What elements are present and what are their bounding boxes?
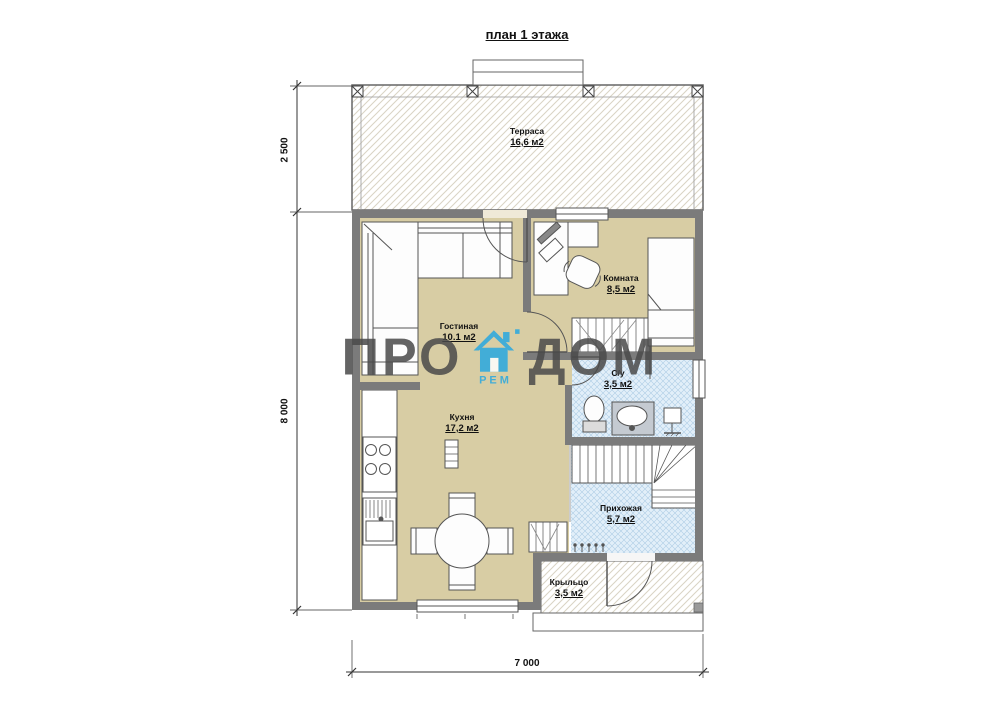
room-name: Комната bbox=[603, 273, 638, 284]
room-name: Кухня bbox=[445, 412, 478, 423]
house-icon bbox=[472, 328, 520, 374]
room-label-bedroom: Комната 8,5 м2 bbox=[603, 273, 638, 296]
bath-window bbox=[693, 360, 705, 398]
room-label-porch: Крыльцо 3,5 м2 bbox=[550, 577, 589, 600]
room-label-hallway: Прихожая 5,7 м2 bbox=[600, 503, 642, 526]
bath-sink bbox=[612, 402, 654, 435]
toilet bbox=[583, 396, 606, 432]
hall-closet bbox=[529, 522, 567, 552]
watermark-left-text: ПРО bbox=[342, 331, 463, 383]
watermark-sub-text: РЕМ bbox=[479, 375, 512, 387]
room-area: 3,5 м2 bbox=[550, 588, 589, 600]
room-name: Прихожая bbox=[600, 503, 642, 514]
dimension-bottom: 7 000 bbox=[514, 658, 539, 669]
page-title: план 1 этажа bbox=[486, 27, 569, 42]
room-label-terrace: Терраса 16,6 м2 bbox=[510, 126, 544, 149]
room-area: 17,2 м2 bbox=[445, 423, 478, 435]
kitchen-window bbox=[417, 600, 518, 619]
room-area: 16,6 м2 bbox=[510, 137, 544, 149]
floor-plan-page: план 1 этажа Терраса 16,6 м2 Гостиная 10… bbox=[0, 0, 1000, 708]
room-label-kitchen: Кухня 17,2 м2 bbox=[445, 412, 478, 435]
room-area: 8,5 м2 bbox=[603, 284, 638, 296]
room-name: Терраса bbox=[510, 126, 544, 137]
watermark-right-text: ДОМ bbox=[529, 331, 659, 383]
room-window bbox=[556, 208, 608, 220]
watermark: ПРО РЕМ ДОМ bbox=[342, 328, 659, 387]
dimension-left-main: 8 000 bbox=[280, 398, 291, 423]
kitchen-counter bbox=[362, 390, 397, 600]
watermark-house: РЕМ bbox=[472, 328, 520, 387]
room-name: Крыльцо bbox=[550, 577, 589, 588]
dimension-left-top: 2 500 bbox=[280, 137, 291, 162]
radiator bbox=[445, 440, 458, 468]
room-area: 5,7 м2 bbox=[600, 514, 642, 526]
